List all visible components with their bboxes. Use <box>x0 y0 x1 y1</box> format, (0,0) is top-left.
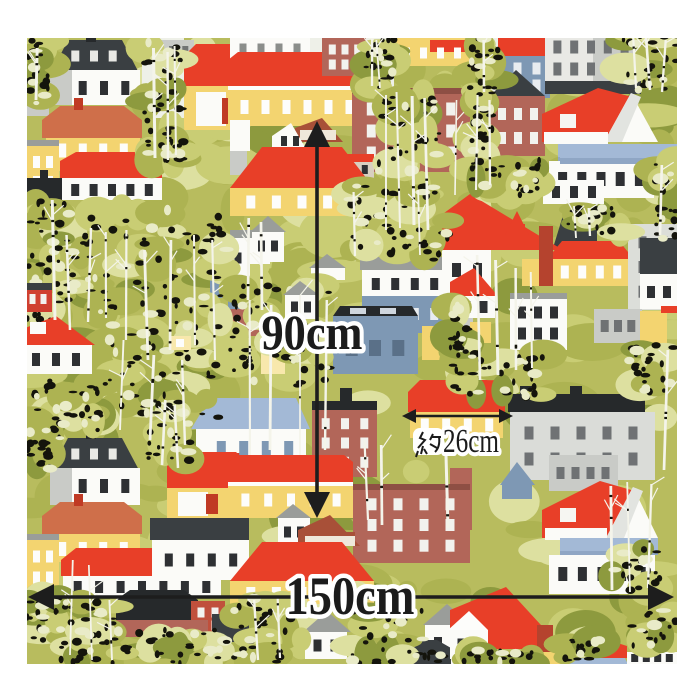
svg-text:26cm: 26cm <box>443 423 499 460</box>
svg-text:90cm: 90cm <box>262 304 363 360</box>
svg-text:150cm: 150cm <box>286 566 415 626</box>
